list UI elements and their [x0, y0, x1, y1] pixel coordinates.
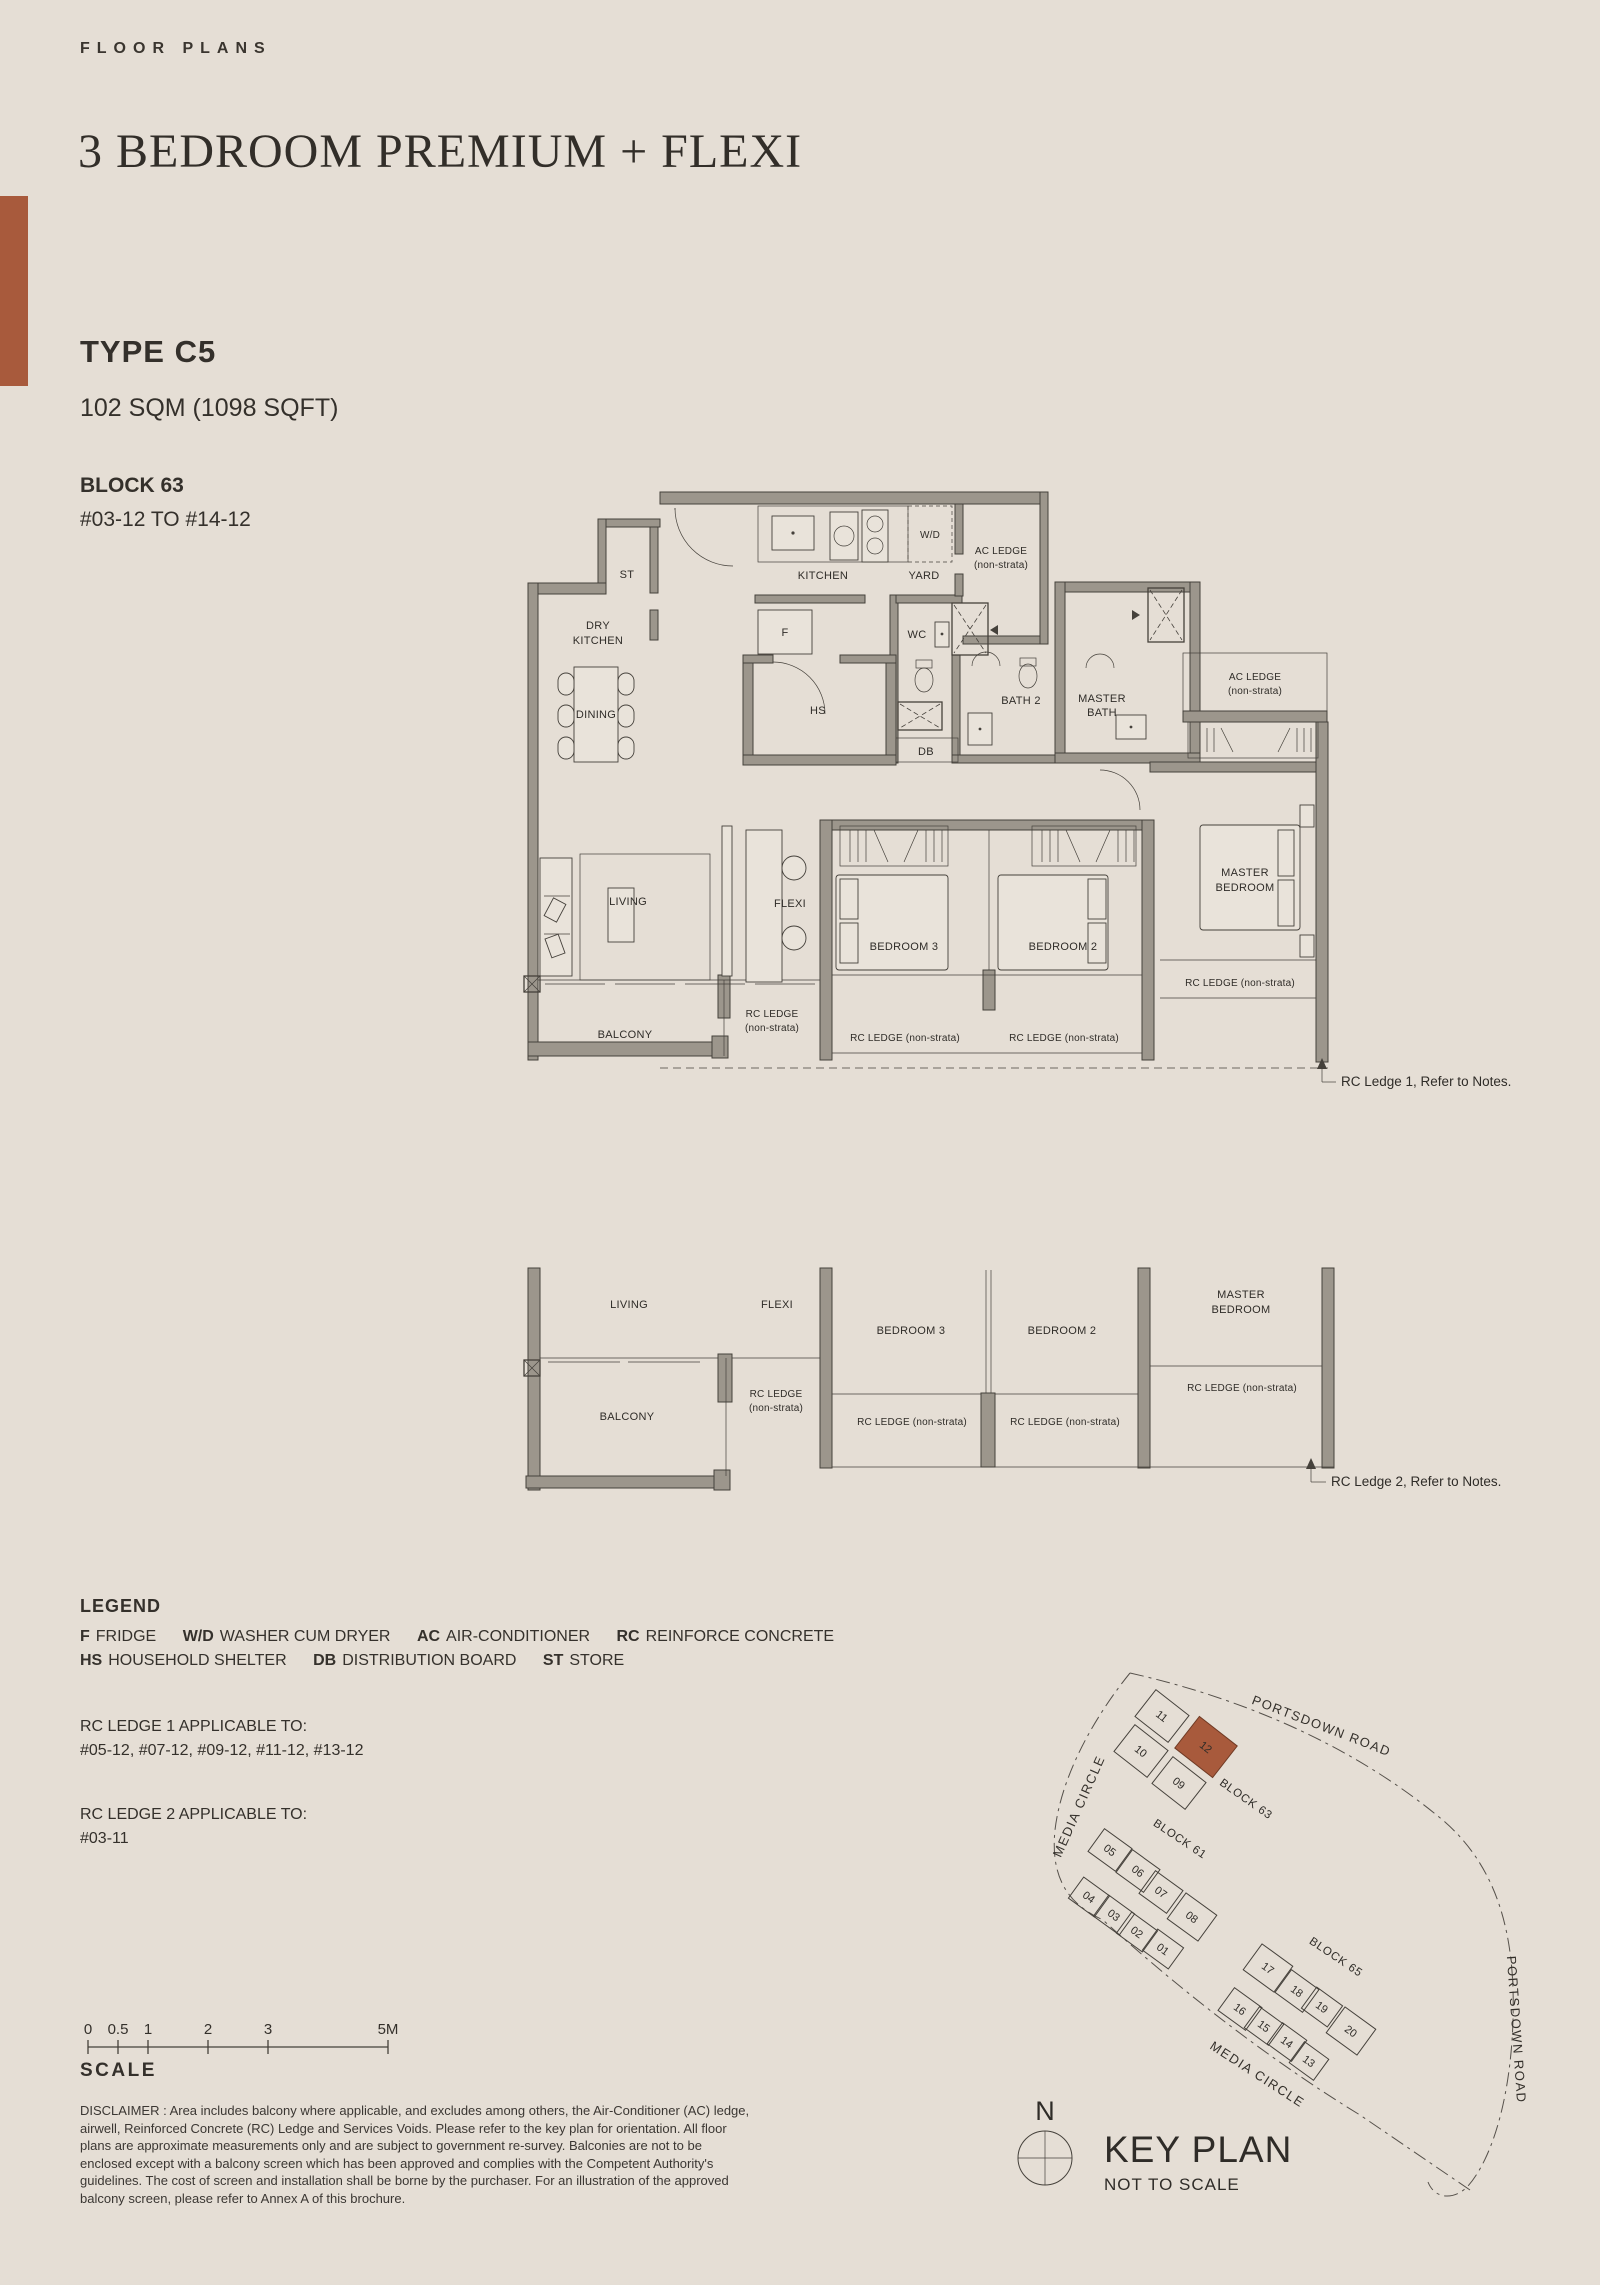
bed-bedroom3-icon [836, 875, 948, 970]
legend-row-2: HSHOUSEHOLD SHELTER DBDISTRIBUTION BOARD… [80, 1652, 646, 1670]
svg-text:MASTER: MASTER [1217, 1289, 1265, 1301]
svg-text:RC LEDGE: RC LEDGE [750, 1389, 803, 1400]
rc-ledge2-units: #03-11 [80, 1830, 129, 1848]
svg-text:BEDROOM 2: BEDROOM 2 [1028, 1325, 1097, 1337]
svg-text:16: 16 [1231, 2001, 1248, 2018]
disclaimer-text: DISCLAIMER : Area includes balcony where… [80, 2102, 756, 2208]
svg-text:(non-strata): (non-strata) [749, 1403, 803, 1414]
unit-stack: #03-12 TO #14-12 [80, 508, 251, 532]
svg-text:KITCHEN: KITCHEN [798, 570, 848, 582]
partition-lines [540, 1270, 1334, 1476]
hs-shaft-icon [898, 702, 942, 730]
scale-bar: 0 0.5 1 2 3 5M [80, 2022, 420, 2062]
wardrobe-bedroom2-icon [1032, 826, 1136, 866]
main-floor-plan: W/D F [500, 470, 1560, 1090]
svg-text:20: 20 [1342, 2023, 1359, 2040]
svg-text:MASTER: MASTER [1221, 867, 1269, 879]
svg-text:BLOCK 65: BLOCK 65 [1307, 1935, 1365, 1979]
svg-text:05: 05 [1101, 1842, 1118, 1859]
rc-ledge-plan: RC Ledge 2, Refer to Notes. LIVING FLEXI… [500, 1250, 1560, 1520]
svg-text:(non-strata): (non-strata) [974, 560, 1028, 571]
svg-text:N: N [1035, 2096, 1055, 2126]
svg-text:MASTER: MASTER [1078, 693, 1126, 705]
svg-text:BEDROOM 2: BEDROOM 2 [1029, 941, 1098, 953]
keyplan-title: KEY PLAN [1104, 2129, 1292, 2170]
svg-text:BEDROOM: BEDROOM [1212, 1304, 1271, 1316]
room-labels: LIVING FLEXI BEDROOM 3 BEDROOM 2 MASTER … [600, 1289, 1297, 1428]
scale-label: SCALE [80, 2060, 157, 2082]
svg-text:YARD: YARD [909, 570, 940, 582]
floorplan-page: FLOOR PLANS 3 BEDROOM PREMIUM + FLEXI TY… [0, 0, 1600, 2285]
svg-text:06: 06 [1129, 1863, 1146, 1880]
keyplan-subtitle: NOT TO SCALE [1104, 2175, 1240, 2194]
svg-text:MEDIA CIRCLE: MEDIA CIRCLE [1207, 2038, 1307, 2110]
svg-text:MEDIA CIRCLE: MEDIA CIRCLE [1050, 1753, 1108, 1859]
road-lines [1054, 1673, 1513, 2196]
svg-text:LIVING: LIVING [610, 1299, 648, 1311]
rc-ledge1-units: #05-12, #07-12, #09-12, #11-12, #13-12 [80, 1742, 363, 1760]
svg-text:BALCONY: BALCONY [598, 1029, 653, 1041]
unit-area: 102 SQM (1098 SQFT) [80, 394, 338, 423]
rc-ledge1-note: RC Ledge 1, Refer to Notes. [1317, 1058, 1511, 1089]
svg-text:11: 11 [1153, 1709, 1169, 1725]
svg-text:BATH: BATH [1087, 707, 1117, 719]
bed-bedroom2-icon [998, 875, 1108, 970]
svg-text:BLOCK 61: BLOCK 61 [1151, 1817, 1209, 1861]
svg-text:KITCHEN: KITCHEN [573, 635, 623, 647]
svg-text:RC LEDGE (non-strata): RC LEDGE (non-strata) [857, 1417, 967, 1428]
block-61: 05 06 07 08 04 03 02 01 BLOCK 61 [1068, 1817, 1216, 1969]
svg-text:W/D: W/D [920, 530, 940, 541]
svg-text:PORTSDOWN ROAD: PORTSDOWN ROAD [1250, 1692, 1393, 1759]
svg-text:1: 1 [144, 2022, 152, 2038]
svg-text:ST: ST [620, 569, 635, 581]
bed-master-icon [1200, 805, 1314, 957]
svg-text:3: 3 [264, 2022, 272, 2038]
svg-text:DRY: DRY [586, 620, 610, 632]
svg-text:DINING: DINING [576, 709, 616, 721]
svg-text:BEDROOM 3: BEDROOM 3 [870, 941, 939, 953]
svg-text:14: 14 [1278, 2034, 1295, 2051]
svg-text:BEDROOM: BEDROOM [1216, 882, 1275, 894]
svg-text:01: 01 [1154, 1941, 1171, 1958]
svg-text:RC Ledge 1, Refer to Notes.: RC Ledge 1, Refer to Notes. [1341, 1074, 1511, 1089]
key-plan: PORTSDOWN ROAD PORTSDOWN ROAD MEDIA CIRC… [1000, 1630, 1600, 2230]
sofa-icon [540, 854, 710, 980]
svg-text:(non-strata): (non-strata) [1228, 686, 1282, 697]
washer-dryer-icon: W/D [908, 506, 952, 562]
svg-text:RC LEDGE (non-strata): RC LEDGE (non-strata) [850, 1033, 960, 1044]
svg-text:RC LEDGE (non-strata): RC LEDGE (non-strata) [1010, 1417, 1120, 1428]
accent-bar [0, 196, 28, 386]
svg-text:RC LEDGE: RC LEDGE [746, 1009, 799, 1020]
svg-text:0.5: 0.5 [108, 2022, 129, 2038]
kitchen-counter-icon [758, 506, 908, 562]
svg-text:08: 08 [1183, 1909, 1200, 1926]
svg-text:03: 03 [1105, 1907, 1122, 1924]
rc-hatch [1200, 728, 1311, 752]
fridge-icon: F [758, 610, 812, 654]
svg-text:5M: 5M [378, 2022, 399, 2038]
legend-row-1: FFRIDGE W/DWASHER CUM DRYER ACAIR-CONDIT… [80, 1628, 856, 1646]
svg-text:BLOCK 63: BLOCK 63 [1217, 1777, 1274, 1822]
svg-text:17: 17 [1259, 1960, 1276, 1977]
shaft-icon [952, 603, 998, 655]
svg-text:(non-strata): (non-strata) [745, 1023, 799, 1034]
svg-text:DB: DB [918, 746, 934, 758]
wardrobe-bedroom3-icon [840, 826, 948, 866]
svg-text:15: 15 [1255, 2018, 1272, 2035]
svg-text:RC LEDGE (non-strata): RC LEDGE (non-strata) [1187, 1383, 1297, 1394]
svg-text:RC LEDGE (non-strata): RC LEDGE (non-strata) [1185, 978, 1295, 989]
svg-text:13: 13 [1300, 2053, 1317, 2070]
rc-ledge2-note: RC Ledge 2, Refer to Notes. [1306, 1458, 1501, 1489]
svg-text:19: 19 [1313, 1999, 1330, 2016]
unit-type: TYPE C5 [80, 334, 216, 370]
svg-text:0: 0 [84, 2022, 92, 2038]
svg-text:09: 09 [1170, 1775, 1187, 1792]
rc-ledge1-applicable: RC LEDGE 1 APPLICABLE TO: [80, 1718, 307, 1736]
rc-ledge2-applicable: RC LEDGE 2 APPLICABLE TO: [80, 1806, 307, 1824]
svg-text:HS: HS [810, 705, 826, 717]
unit-block: BLOCK 63 [80, 474, 184, 498]
unit-12-highlight: 12 [1175, 1716, 1237, 1777]
svg-text:2: 2 [204, 2022, 212, 2038]
north-compass-icon: N [1018, 2096, 1072, 2185]
svg-text:18: 18 [1288, 1983, 1305, 2000]
svg-text:F: F [781, 627, 788, 639]
svg-text:BALCONY: BALCONY [600, 1411, 655, 1423]
svg-text:04: 04 [1080, 1889, 1097, 1906]
svg-text:02: 02 [1128, 1924, 1145, 1941]
svg-text:RC Ledge 2, Refer to Notes.: RC Ledge 2, Refer to Notes. [1331, 1474, 1501, 1489]
svg-text:07: 07 [1152, 1884, 1169, 1901]
svg-text:FLEXI: FLEXI [774, 898, 806, 910]
svg-text:10: 10 [1132, 1743, 1149, 1760]
svg-text:FLEXI: FLEXI [761, 1299, 793, 1311]
svg-text:LIVING: LIVING [609, 896, 647, 908]
svg-text:BATH 2: BATH 2 [1001, 695, 1041, 707]
page-title: 3 BEDROOM PREMIUM + FLEXI [78, 124, 802, 179]
svg-text:BEDROOM 3: BEDROOM 3 [877, 1325, 946, 1337]
svg-text:AC LEDGE: AC LEDGE [975, 546, 1027, 557]
breadcrumb: FLOOR PLANS [80, 40, 272, 58]
svg-text:AC LEDGE: AC LEDGE [1229, 672, 1281, 683]
block-63: 11 10 12 09 BLOCK 63 [1114, 1690, 1274, 1822]
svg-text:RC LEDGE (non-strata): RC LEDGE (non-strata) [1009, 1033, 1119, 1044]
svg-text:WC: WC [908, 629, 927, 641]
legend-title: LEGEND [80, 1596, 161, 1617]
